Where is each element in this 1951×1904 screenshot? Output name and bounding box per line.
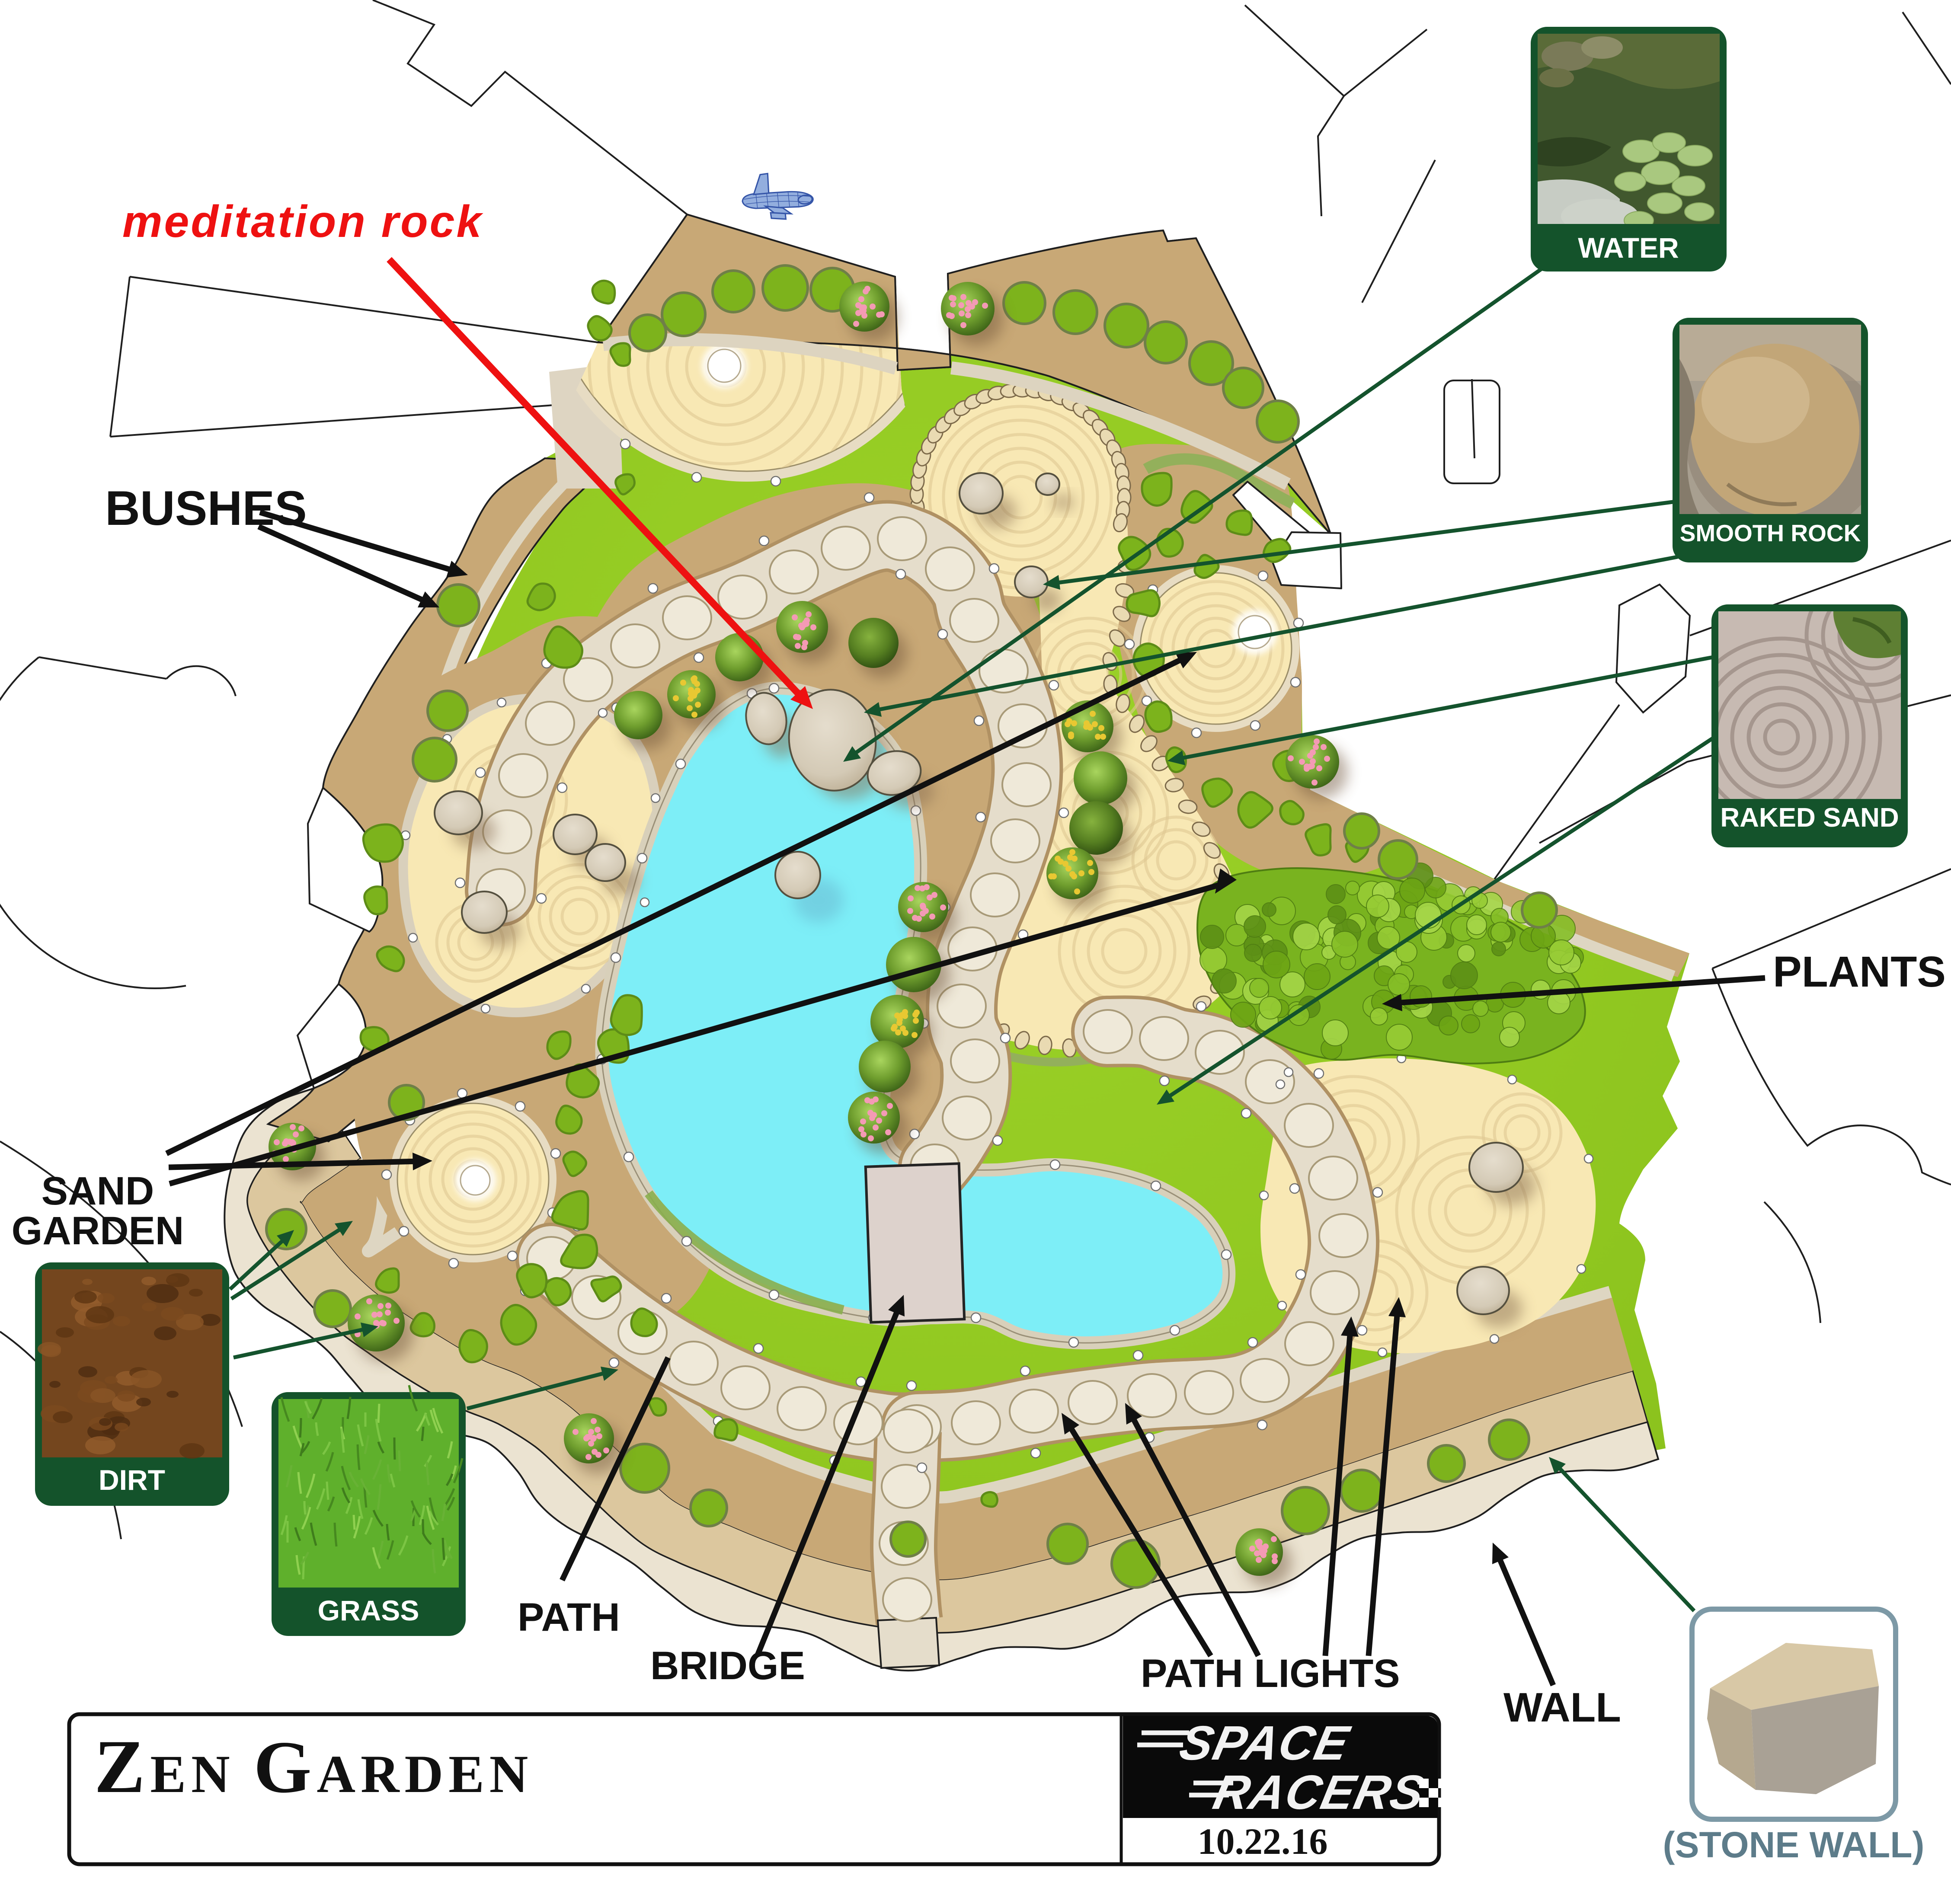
svg-text:BUSHES: BUSHES — [105, 481, 307, 535]
svg-text:PLANTS: PLANTS — [1773, 948, 1946, 996]
svg-text:DIRT: DIRT — [99, 1464, 165, 1496]
svg-text:WATER: WATER — [1578, 232, 1679, 264]
svg-text:PATH LIGHTS: PATH LIGHTS — [1141, 1652, 1400, 1696]
svg-text:meditation rock: meditation rock — [122, 197, 484, 247]
svg-text:BRIDGE: BRIDGE — [650, 1644, 805, 1688]
svg-text:GRASS: GRASS — [318, 1594, 419, 1626]
svg-text:PATH: PATH — [518, 1595, 620, 1639]
svg-text:SMOOTH ROCK: SMOOTH ROCK — [1680, 520, 1861, 546]
svg-text:SPACE: SPACE — [1175, 1716, 1355, 1770]
svg-text:GARDEN: GARDEN — [12, 1209, 184, 1253]
svg-text:WALL: WALL — [1503, 1684, 1621, 1731]
svg-text:(STONE WALL): (STONE WALL) — [1663, 1824, 1924, 1865]
svg-text:SAND: SAND — [42, 1169, 154, 1213]
svg-text:10.22.16: 10.22.16 — [1198, 1821, 1328, 1862]
svg-text:RACERS: RACERS — [1209, 1765, 1430, 1819]
svg-text:RAKED SAND: RAKED SAND — [1720, 803, 1899, 833]
